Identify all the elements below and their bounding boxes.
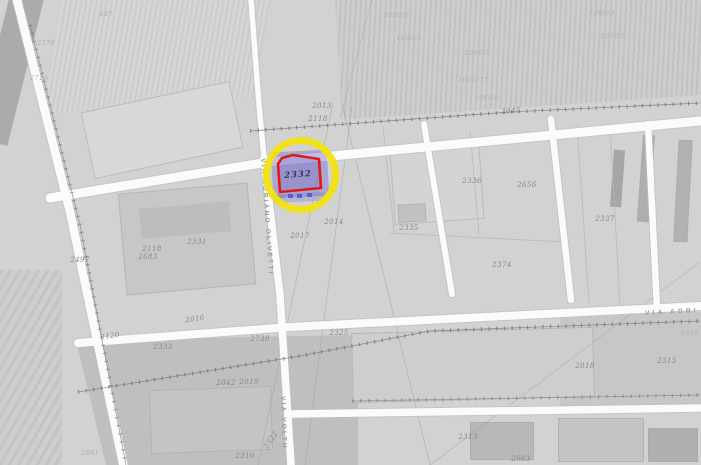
highlight-outline[interactable] bbox=[278, 155, 321, 192]
highlight-fill bbox=[271, 150, 329, 199]
building bbox=[470, 422, 534, 460]
highlighted-parcel-number: 2332 bbox=[284, 169, 312, 181]
building bbox=[149, 386, 273, 454]
field-texture-top-right bbox=[335, 0, 701, 122]
building bbox=[637, 135, 655, 223]
parcel-label: 2337 bbox=[595, 215, 614, 223]
parcel-label: 2713 bbox=[30, 74, 48, 82]
blue-markers bbox=[275, 193, 312, 198]
building bbox=[648, 428, 698, 462]
parcel-label: 2681 bbox=[81, 449, 99, 457]
building bbox=[558, 418, 644, 462]
parcel-label: 2374 bbox=[492, 261, 511, 269]
parcel-label: 2497 bbox=[70, 256, 89, 264]
road-vertical-b bbox=[551, 119, 571, 300]
building bbox=[397, 203, 426, 223]
highlighted-parcel-group bbox=[271, 150, 329, 204]
parcel-label: 2335 bbox=[399, 224, 418, 232]
map-canvas[interactable]: 2332 20132118233626562337233523742331211… bbox=[0, 0, 701, 465]
highlight-fill-strip bbox=[274, 192, 324, 204]
parcel-label: 2014 bbox=[324, 218, 343, 226]
parcel-label: 2370 bbox=[37, 39, 55, 47]
tree-band-left-edge bbox=[0, 0, 44, 146]
building bbox=[673, 140, 692, 243]
parcel-label: 2118 bbox=[308, 115, 327, 123]
building bbox=[118, 183, 256, 296]
parcel-label: 2016 bbox=[185, 314, 205, 325]
street-name-label: VIA ADRIANO OLIVETTI bbox=[259, 158, 274, 276]
parcel-label: 2013 bbox=[312, 102, 331, 110]
building bbox=[610, 150, 625, 208]
warehouse-building bbox=[351, 327, 595, 403]
orchard-texture-bottom-left bbox=[0, 270, 62, 465]
parcel-label: 2656 bbox=[517, 181, 536, 189]
parcel-label: 2017 bbox=[290, 232, 309, 240]
highlight-ring bbox=[267, 141, 336, 210]
